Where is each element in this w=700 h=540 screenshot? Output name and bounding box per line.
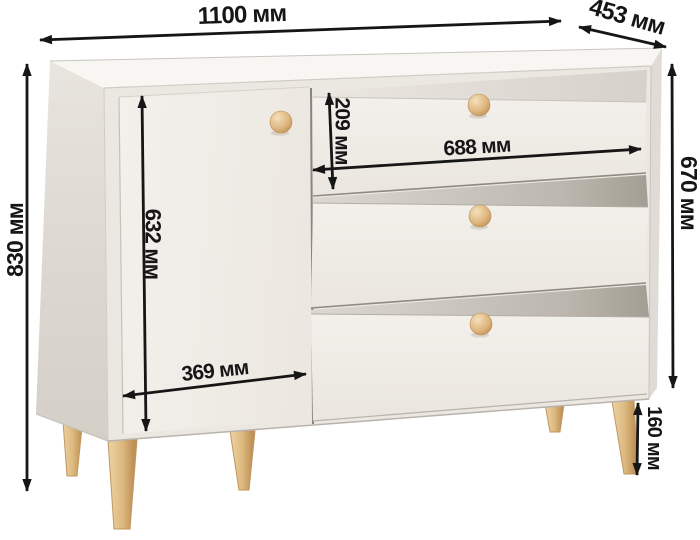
door-knob: [270, 111, 292, 133]
dim-overall-width-arrow: [40, 21, 561, 40]
dim-leg-height: 160 мм: [637, 403, 665, 475]
dim-top-drawer-height-label: 209 мм: [331, 97, 354, 164]
drawer-2-knob: [469, 205, 491, 227]
leg-back-right: [545, 404, 564, 432]
dim-overall-height-label: 830 мм: [2, 203, 28, 277]
leg-back-middle: [230, 431, 255, 490]
dim-overall-height: 830 мм: [2, 64, 28, 491]
dim-carcass-height-label: 670 мм: [676, 156, 700, 230]
dim-door-height-label: 632 мм: [141, 209, 166, 280]
drawer-1-knob: [468, 94, 490, 116]
dresser-left-side-panel: [36, 61, 108, 441]
drawer-3-knob: [470, 313, 492, 335]
product-dimension-diagram: 1100 мм 453 мм 830 мм 670 мм 632 мм 209 …: [0, 0, 700, 540]
dim-overall-width-label: 1100 мм: [197, 0, 287, 30]
dim-drawer-width-label: 688 мм: [443, 133, 512, 160]
dim-depth-label: 453 мм: [586, 0, 668, 41]
leg-front-left: [108, 440, 137, 529]
dim-leg-height-arrow: [637, 403, 638, 475]
leg-front-right: [612, 401, 638, 474]
dim-carcass-height-arrow: [672, 64, 673, 388]
dim-carcass-height: 670 мм: [672, 64, 700, 388]
dim-overall-width: 1100 мм: [40, 0, 561, 40]
diagram-canvas: 1100 мм 453 мм 830 мм 670 мм 632 мм 209 …: [0, 0, 700, 540]
drawer-stack: [311, 70, 649, 421]
dim-leg-height-label: 160 мм: [643, 406, 665, 470]
dim-depth: 453 мм: [579, 0, 668, 47]
